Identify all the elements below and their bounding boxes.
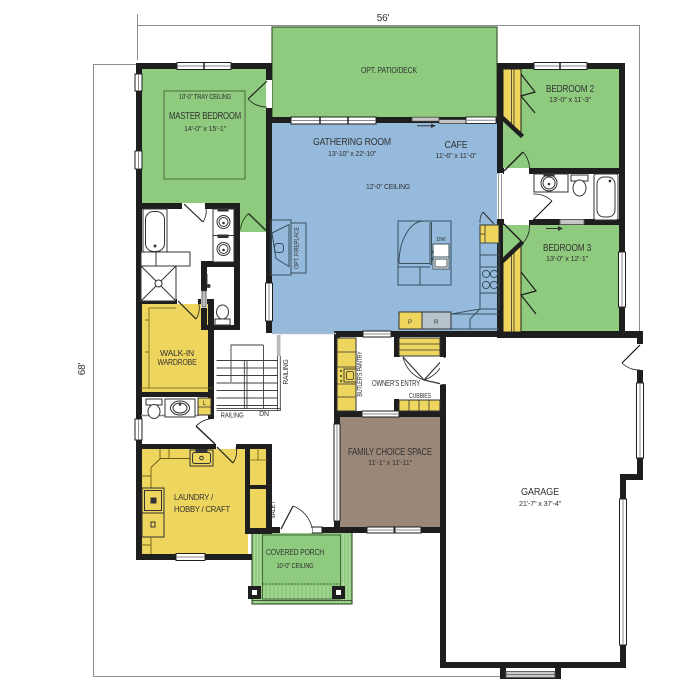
svg-text:COVERED PORCH: COVERED PORCH bbox=[266, 548, 324, 557]
svg-text:GARAGE: GARAGE bbox=[521, 487, 559, 498]
svg-text:CAFE: CAFE bbox=[445, 140, 468, 151]
svg-text:56': 56' bbox=[377, 13, 390, 24]
svg-text:FAMILY CHOICE SPACE: FAMILY CHOICE SPACE bbox=[348, 447, 432, 458]
svg-text:RAILING: RAILING bbox=[221, 413, 244, 420]
svg-text:13'-10" x 22'-10": 13'-10" x 22'-10" bbox=[328, 151, 377, 158]
svg-text:WALK-IN: WALK-IN bbox=[160, 349, 194, 358]
svg-text:OPT. FIREPLACE: OPT. FIREPLACE bbox=[295, 227, 301, 269]
svg-text:VALET: VALET bbox=[270, 500, 277, 519]
svg-text:RAILING: RAILING bbox=[283, 360, 290, 385]
svg-text:11'-6" x 11'-0": 11'-6" x 11'-0" bbox=[436, 153, 478, 160]
svg-text:BEDROOM 3: BEDROOM 3 bbox=[543, 243, 592, 254]
svg-text:68': 68' bbox=[77, 362, 88, 375]
svg-text:DW: DW bbox=[437, 237, 447, 243]
svg-text:10'-0" TRAY CEILING: 10'-0" TRAY CEILING bbox=[179, 94, 231, 101]
svg-text:P: P bbox=[408, 320, 412, 326]
svg-text:DN: DN bbox=[259, 411, 269, 418]
svg-text:OPT. PATIO/DECK: OPT. PATIO/DECK bbox=[361, 66, 418, 75]
svg-text:12'-0" CEILING: 12'-0" CEILING bbox=[366, 184, 410, 191]
svg-text:BEDROOM 2: BEDROOM 2 bbox=[546, 84, 595, 95]
svg-text:WARDROBE: WARDROBE bbox=[158, 358, 197, 367]
svg-text:21'-7" x 37'-4": 21'-7" x 37'-4" bbox=[519, 501, 562, 508]
svg-text:CUBBIES: CUBBIES bbox=[409, 393, 431, 400]
svg-text:14'-0" x 15'-1": 14'-0" x 15'-1" bbox=[184, 126, 227, 133]
svg-text:13'-0" x 11'-3": 13'-0" x 11'-3" bbox=[549, 97, 592, 104]
svg-text:10'-0" CEILING: 10'-0" CEILING bbox=[277, 563, 314, 570]
svg-text:13'-0" x 12'-1": 13'-0" x 12'-1" bbox=[546, 256, 589, 263]
svg-text:BUTLER'S PANTRY: BUTLER'S PANTRY bbox=[357, 351, 364, 396]
svg-text:11'-1" x 11'-11": 11'-1" x 11'-11" bbox=[368, 460, 413, 467]
svg-text:LAUNDRY /: LAUNDRY / bbox=[174, 493, 214, 502]
svg-text:MASTER BEDROOM: MASTER BEDROOM bbox=[169, 111, 241, 122]
svg-text:OWNER'S ENTRY: OWNER'S ENTRY bbox=[372, 379, 421, 388]
svg-text:HOBBY / CRAFT: HOBBY / CRAFT bbox=[174, 505, 230, 514]
svg-text:GATHERING ROOM: GATHERING ROOM bbox=[313, 137, 391, 148]
